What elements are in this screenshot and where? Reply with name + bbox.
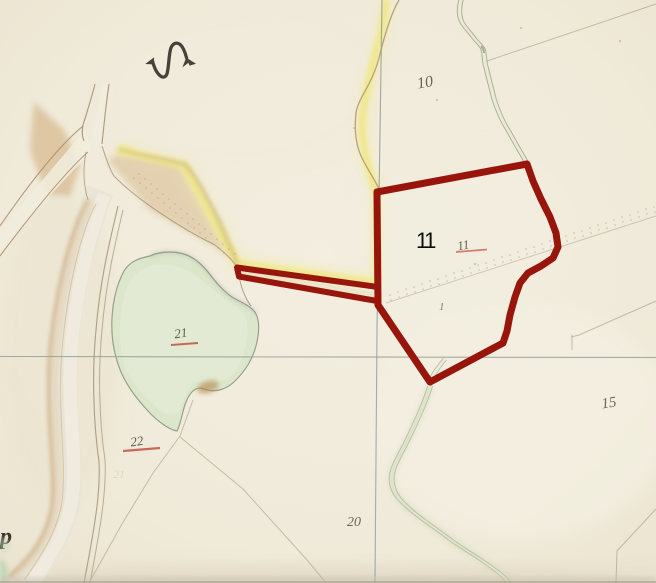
svg-text:1: 1 <box>439 301 445 313</box>
svg-text:21: 21 <box>113 467 125 481</box>
svg-text:10: 10 <box>416 73 435 93</box>
svg-text:21: 21 <box>173 325 188 342</box>
svg-text:22: 22 <box>129 433 144 450</box>
svg-text:15: 15 <box>600 394 618 412</box>
svg-text:11: 11 <box>416 228 436 253</box>
svg-text:20: 20 <box>347 515 361 530</box>
